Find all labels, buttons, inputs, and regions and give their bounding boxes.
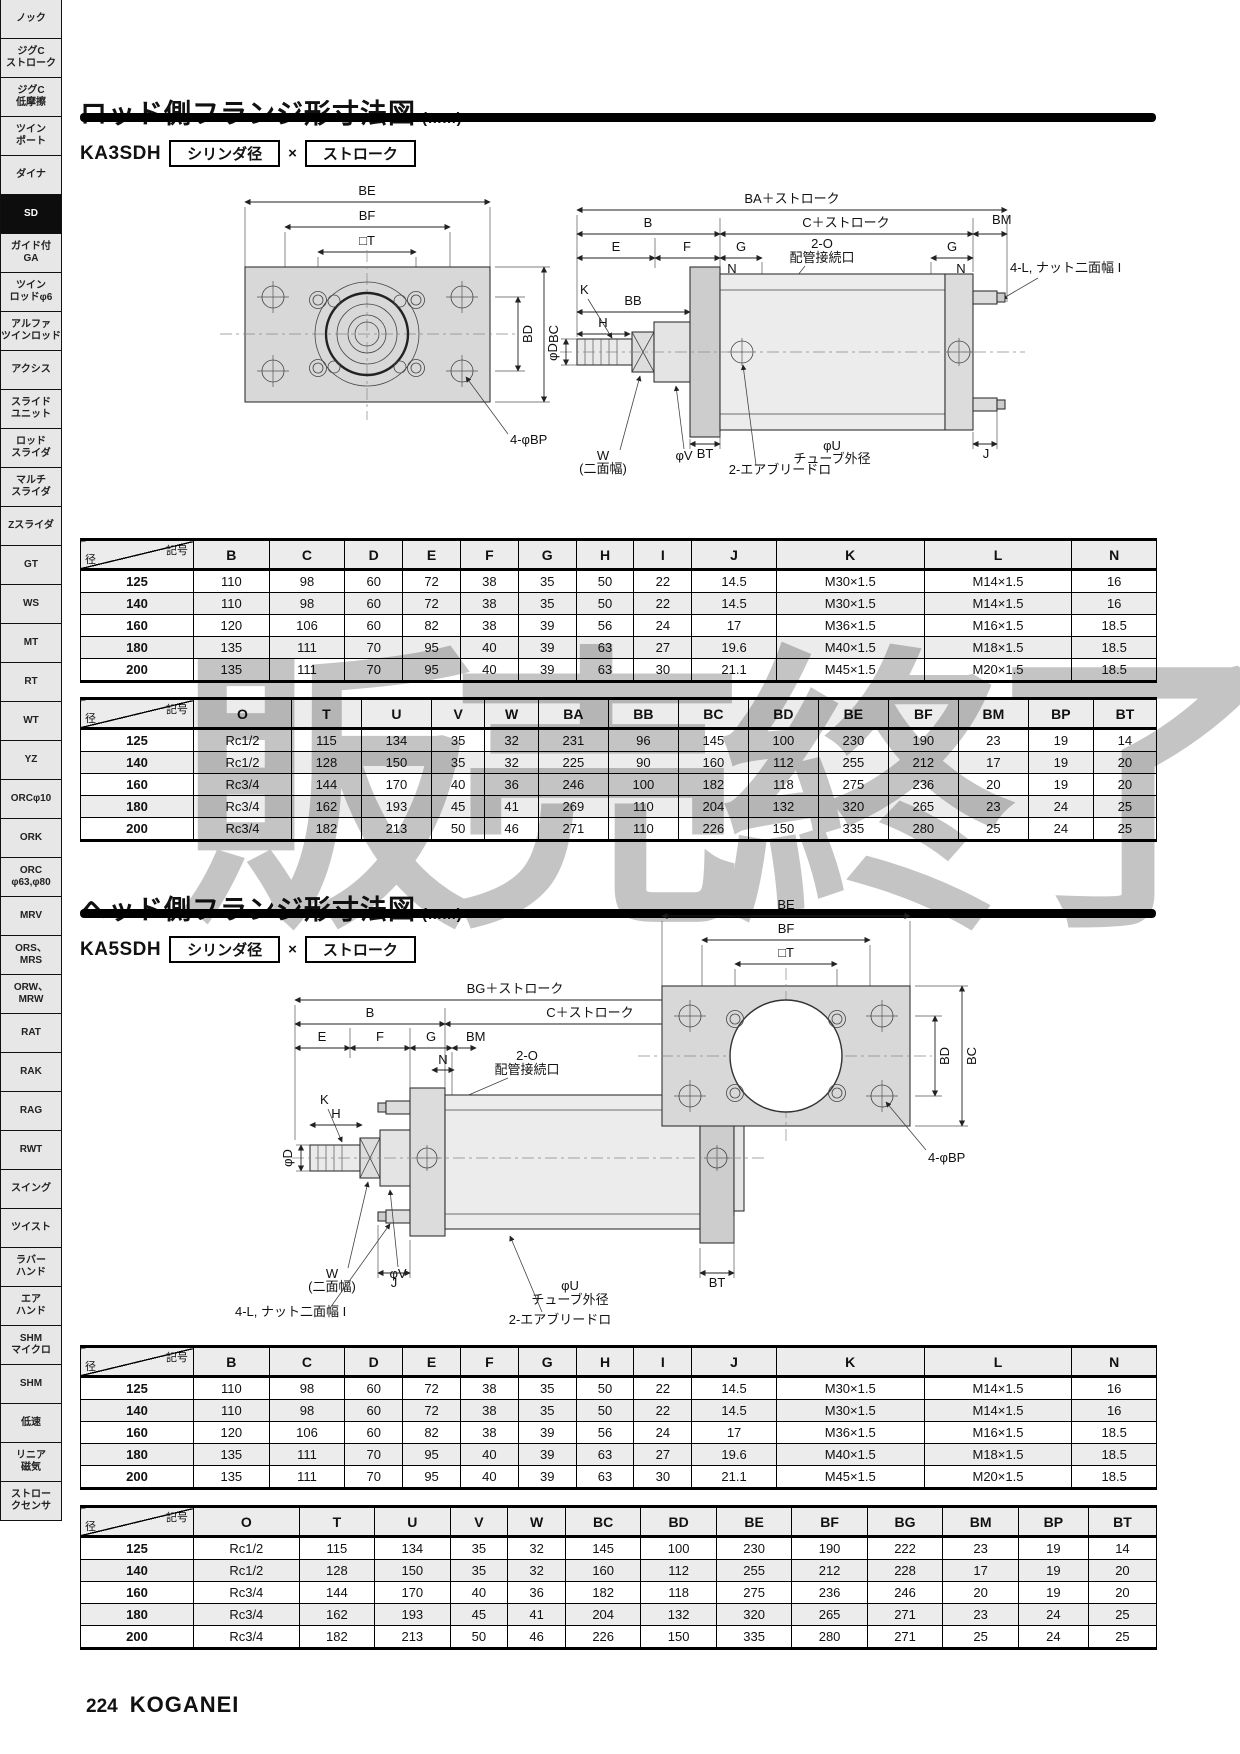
dimension-cell: 150: [748, 818, 818, 841]
column-header: F: [460, 540, 518, 570]
dim-label-ba: BA＋ストローク: [744, 191, 839, 206]
dimension-cell: 39: [518, 1422, 576, 1444]
dim-label-w2: (二面幅): [579, 461, 627, 476]
dimension-cell: 95: [403, 1466, 461, 1489]
dimension-cell: 36: [508, 1582, 566, 1604]
sidebar-item-9[interactable]: アクシス: [0, 350, 62, 390]
bore-size-cell: 160: [81, 615, 194, 637]
dimension-cell: 22: [634, 1400, 692, 1422]
corner-header-cell: 記号径: [81, 540, 194, 570]
rod-cover-2: [410, 1088, 445, 1236]
sidebar-item-23[interactable]: MRV: [0, 896, 62, 936]
dimension-cell: 35: [431, 752, 485, 774]
dimension-cell: 25: [958, 818, 1028, 841]
dimension-cell: 18.5: [1072, 637, 1157, 659]
dimension-cell: Rc1/2: [194, 1560, 300, 1582]
sidebar-item-34[interactable]: SHM マイクロ: [0, 1325, 62, 1365]
sidebar-item-36[interactable]: 低速: [0, 1403, 62, 1443]
dimension-cell: 160: [565, 1560, 640, 1582]
dimension-cell: 14: [1093, 729, 1156, 752]
dimension-cell: M30×1.5: [776, 1377, 924, 1400]
bore-size-cell: 140: [81, 1400, 194, 1422]
dimension-cell: M14×1.5: [924, 593, 1072, 615]
dimension-cell: 46: [485, 818, 539, 841]
sidebar-item-8[interactable]: アルファ ツインロッド: [0, 311, 62, 351]
column-header: B: [194, 1347, 270, 1377]
dimension-cell: 17: [943, 1560, 1019, 1582]
column-header: L: [924, 540, 1072, 570]
dim-label-u2: φU: [561, 1278, 579, 1293]
dimension-cell: 40: [460, 659, 518, 682]
dimension-cell: 23: [943, 1604, 1019, 1626]
dimension-cell: 170: [361, 774, 431, 796]
dimension-cell: 40: [431, 774, 485, 796]
dimension-cell: 70: [345, 659, 403, 682]
sidebar-item-25[interactable]: ORW、 MRW: [0, 974, 62, 1014]
column-header: W: [508, 1507, 566, 1537]
dimension-cell: 335: [716, 1626, 791, 1649]
dimension-cell: 14: [1088, 1537, 1156, 1560]
dim-label-e2: E: [318, 1029, 327, 1044]
dimension-cell: 19: [1018, 1560, 1088, 1582]
bore-size-cell: 160: [81, 1582, 194, 1604]
ka3sdh-mounting-table: 記号径OTUVWBABBBCBDBEBFBMBPBT125Rc1/2115134…: [80, 697, 1157, 842]
dimension-cell: 22: [634, 1377, 692, 1400]
dim-label-bm: BM: [992, 212, 1012, 227]
dimension-cell: 231: [538, 729, 608, 752]
dim-label-j2: J: [391, 1275, 398, 1290]
dimension-cell: 45: [431, 796, 485, 818]
column-header: BD: [641, 1507, 716, 1537]
dimension-cell: 38: [460, 570, 518, 593]
dimension-cell: 265: [792, 1604, 867, 1626]
table-row: 180Rc3/41621934541204132320265271232425: [81, 1604, 1157, 1626]
dimension-cell: Rc1/2: [194, 729, 292, 752]
dimension-cell: 275: [716, 1582, 791, 1604]
sidebar-item-37[interactable]: リニア 磁気: [0, 1442, 62, 1482]
dim-label-bb: BB: [624, 293, 641, 308]
sidebar-item-20[interactable]: ORCφ10: [0, 779, 62, 819]
dimension-cell: 38: [460, 1422, 518, 1444]
column-header: B: [194, 540, 270, 570]
ka3sdh-dimension-table: 記号径BCDEFGHIJKLN1251109860723835502214.5M…: [80, 538, 1157, 683]
dimension-cell: 25: [943, 1626, 1019, 1649]
dim-label-g2: G: [947, 239, 957, 254]
sidebar-item-21[interactable]: ORK: [0, 818, 62, 858]
dim-label-f2: F: [376, 1029, 384, 1044]
dim-label-f: F: [683, 239, 691, 254]
column-header: BP: [1028, 699, 1093, 729]
dimension-cell: 24: [634, 615, 692, 637]
times-sign: ×: [288, 145, 297, 162]
column-header: T: [299, 1507, 374, 1537]
sidebar-item-22[interactable]: ORC φ63,φ80: [0, 857, 62, 897]
dimension-cell: 46: [508, 1626, 566, 1649]
dimension-cell: Rc3/4: [194, 796, 292, 818]
sidebar-item-32[interactable]: ラバー ハンド: [0, 1247, 62, 1287]
table-row: 160Rc3/41441704036182118275236246201920: [81, 1582, 1157, 1604]
corner-header-cell: 記号径: [81, 1347, 194, 1377]
dim-label-d2: φD: [280, 1149, 295, 1167]
nut-width-label-2: 4-L, ナット二面幅 I: [235, 1304, 346, 1319]
dim-label-n1-2: N: [438, 1052, 447, 1067]
dimension-cell: 35: [518, 1400, 576, 1422]
sidebar-item-33[interactable]: エア ハンド: [0, 1286, 62, 1326]
dim-label-e: E: [612, 239, 621, 254]
dimension-cell: 135: [194, 659, 270, 682]
dimension-cell: 255: [818, 752, 888, 774]
sidebar-item-4[interactable]: ダイナ: [0, 155, 62, 195]
dimension-cell: M30×1.5: [776, 593, 924, 615]
dimension-cell: 100: [641, 1537, 716, 1560]
sidebar-item-27[interactable]: RAK: [0, 1052, 62, 1092]
dimension-cell: 27: [634, 1444, 692, 1466]
dim-label-bg: BG＋ストローク: [467, 981, 564, 996]
koganei-logo: KOGANEI: [130, 1692, 240, 1718]
dimension-cell: 35: [518, 1377, 576, 1400]
dim-label-k2: K: [320, 1092, 329, 1107]
bore-size-cell: 125: [81, 729, 194, 752]
bore-size-cell: 125: [81, 570, 194, 593]
dimension-cell: 21.1: [692, 659, 777, 682]
column-header: G: [518, 540, 576, 570]
dimension-cell: 38: [460, 1377, 518, 1400]
dimension-cell: 111: [269, 637, 345, 659]
air-bleed-label-2: 2-エアブリードロ: [509, 1312, 612, 1327]
section1-title: ロッド側フランジ形寸法図(mm): [80, 92, 463, 131]
sidebar-item-5[interactable]: SD: [0, 194, 62, 234]
nut-width-label: 4-L, ナット二面幅 I: [1010, 260, 1121, 275]
technical-drawing-ka3sdh: BE BF □T BD BC 4-φBP: [80, 172, 1160, 477]
corner-header-cell: 記号径: [81, 699, 194, 729]
dimension-cell: M45×1.5: [776, 659, 924, 682]
bore-size-cell: 125: [81, 1537, 194, 1560]
dimension-cell: 190: [792, 1537, 867, 1560]
sidebar-item-16[interactable]: MT: [0, 623, 62, 663]
dimension-cell: 38: [460, 1400, 518, 1422]
dimension-cell: 22: [634, 593, 692, 615]
flange-plate-front: [245, 267, 490, 402]
dimension-cell: Rc3/4: [194, 774, 292, 796]
bore-size-box: シリンダ径: [169, 140, 280, 167]
table-row: 20013511170954039633021.1M45×1.5M20×1.51…: [81, 1466, 1157, 1489]
dimension-cell: 230: [818, 729, 888, 752]
dimension-cell: 18.5: [1072, 659, 1157, 682]
dimension-cell: M36×1.5: [776, 1422, 924, 1444]
dim-label-be2: BE: [777, 897, 795, 912]
sidebar-item-2[interactable]: ジグC 低摩擦: [0, 77, 62, 117]
dimension-cell: Rc3/4: [194, 1626, 300, 1649]
column-header: N: [1072, 540, 1157, 570]
dimension-cell: 56: [576, 615, 634, 637]
table-row: 1251109860723835502214.5M30×1.5M14×1.516: [81, 570, 1157, 593]
dimension-cell: 150: [641, 1626, 716, 1649]
column-header: K: [776, 540, 924, 570]
dim-label-d: φD: [545, 343, 560, 361]
column-header: BM: [943, 1507, 1019, 1537]
dimension-cell: M14×1.5: [924, 1377, 1072, 1400]
column-header: I: [634, 1347, 692, 1377]
dim-label-b2: B: [366, 1005, 375, 1020]
dimension-cell: 24: [1018, 1626, 1088, 1649]
column-header: C: [269, 540, 345, 570]
sidebar-item-26[interactable]: RAT: [0, 1013, 62, 1053]
dimension-cell: 70: [345, 1444, 403, 1466]
sidebar-item-30[interactable]: スイング: [0, 1169, 62, 1209]
dim-label-bc: BC: [546, 325, 561, 343]
sidebar-item-31[interactable]: ツイスト: [0, 1208, 62, 1248]
column-header: BP: [1018, 1507, 1088, 1537]
dimension-cell: 132: [748, 796, 818, 818]
dim-label-t: □T: [359, 233, 375, 248]
air-bleed-label: 2-エアブリードロ: [729, 462, 832, 477]
dim-label-j: J: [983, 446, 990, 461]
column-header: BG: [867, 1507, 942, 1537]
dimension-cell: 225: [538, 752, 608, 774]
stroke-box: ストローク: [305, 140, 416, 167]
dimension-cell: 128: [299, 1560, 374, 1582]
dimension-table: 記号径BCDEFGHIJKLN1251109860723835502214.5M…: [80, 1345, 1157, 1490]
dim-label-k: K: [580, 282, 589, 297]
dimension-cell: 14.5: [692, 1377, 777, 1400]
column-header: BF: [888, 699, 958, 729]
dimension-cell: 190: [888, 729, 958, 752]
bore-size-cell: 200: [81, 659, 194, 682]
dimension-cell: 22: [634, 570, 692, 593]
dimension-cell: 18.5: [1072, 1444, 1157, 1466]
sidebar-item-3[interactable]: ツイン ポート: [0, 116, 62, 156]
column-header: BE: [818, 699, 888, 729]
dimension-cell: 204: [565, 1604, 640, 1626]
sidebar-item-13[interactable]: Zスライダ: [0, 506, 62, 546]
dimension-cell: 82: [403, 1422, 461, 1444]
ka5sdh-mounting-table: 記号径OTUVWBCBDBEBFBGBMBPBT125Rc1/211513435…: [80, 1505, 1157, 1650]
dimension-cell: 36: [485, 774, 539, 796]
dimension-cell: 40: [450, 1582, 508, 1604]
dimension-cell: 246: [867, 1582, 942, 1604]
dimension-cell: 255: [716, 1560, 791, 1582]
sidebar-item-29[interactable]: RWT: [0, 1130, 62, 1170]
dimension-cell: 118: [641, 1582, 716, 1604]
dimension-cell: 120: [194, 615, 270, 637]
dimension-cell: 18.5: [1072, 1422, 1157, 1444]
sidebar-item-6[interactable]: ガイド付 GA: [0, 233, 62, 273]
dimension-cell: 269: [538, 796, 608, 818]
bore-size-cell: 200: [81, 1626, 194, 1649]
dimension-cell: M18×1.5: [924, 637, 1072, 659]
dimension-cell: Rc1/2: [194, 1537, 300, 1560]
dim-label-g1-2: G: [426, 1029, 436, 1044]
column-header: V: [450, 1507, 508, 1537]
dimension-cell: M16×1.5: [924, 615, 1072, 637]
dimension-cell: 204: [678, 796, 748, 818]
dimension-cell: 20: [1088, 1582, 1156, 1604]
dimension-cell: 236: [888, 774, 958, 796]
dimension-cell: 182: [678, 774, 748, 796]
column-header: F: [460, 1347, 518, 1377]
column-header: H: [576, 540, 634, 570]
dimension-cell: 25: [1088, 1626, 1156, 1649]
dimension-cell: 50: [576, 1377, 634, 1400]
sidebar-item-12[interactable]: マルチ スライダ: [0, 467, 62, 507]
tie-rod-nut-top-2: [386, 1101, 410, 1114]
dimension-cell: 41: [508, 1604, 566, 1626]
section1-model-line: KA3SDH シリンダ径 × ストローク: [80, 140, 416, 167]
dimension-cell: M36×1.5: [776, 615, 924, 637]
dimension-cell: 30: [634, 659, 692, 682]
sidebar-item-24[interactable]: ORS、 MRS: [0, 935, 62, 975]
dimension-cell: 72: [403, 1377, 461, 1400]
dimension-cell: Rc1/2: [194, 752, 292, 774]
table-row: 20013511170954039633021.1M45×1.5M20×1.51…: [81, 659, 1157, 682]
dimension-cell: 56: [576, 1422, 634, 1444]
dimension-cell: M20×1.5: [924, 659, 1072, 682]
dimension-cell: 39: [518, 615, 576, 637]
bore-size-cell: 140: [81, 593, 194, 615]
dimension-cell: 19: [1018, 1582, 1088, 1604]
model-code-ka3sdh: KA3SDH: [80, 143, 161, 165]
dimension-cell: 135: [194, 637, 270, 659]
dimension-cell: 213: [375, 1626, 450, 1649]
dim-label-v: φV: [675, 448, 692, 463]
sidebar-item-17[interactable]: RT: [0, 662, 62, 702]
column-header: D: [345, 540, 403, 570]
dimension-cell: 18.5: [1072, 1466, 1157, 1489]
page-footer: 224 KOGANEI: [86, 1692, 239, 1718]
dimension-cell: 335: [818, 818, 888, 841]
column-header: E: [403, 540, 461, 570]
dimension-cell: 60: [345, 1400, 403, 1422]
dimension-cell: 40: [460, 637, 518, 659]
dimension-cell: 110: [608, 818, 678, 841]
dimension-cell: 150: [375, 1560, 450, 1582]
sidebar-item-0[interactable]: ノック: [0, 0, 62, 39]
product-category-sidebar: ノックジグC ストロークジグC 低摩擦ツイン ポートダイナSDガイド付 GAツイ…: [0, 0, 62, 1521]
table-row: 1251109860723835502214.5M30×1.5M14×1.516: [81, 1377, 1157, 1400]
column-header: V: [431, 699, 485, 729]
dimension-cell: 19: [1028, 729, 1093, 752]
sidebar-item-10[interactable]: スライド ユニット: [0, 389, 62, 429]
dim-label-be: BE: [358, 183, 376, 198]
sidebar-item-35[interactable]: SHM: [0, 1364, 62, 1404]
dimension-cell: 39: [518, 659, 576, 682]
dimension-cell: 111: [269, 1444, 345, 1466]
sidebar-item-14[interactable]: GT: [0, 545, 62, 585]
dimension-cell: 275: [818, 774, 888, 796]
dimension-cell: 106: [269, 1422, 345, 1444]
dimension-cell: 111: [269, 1466, 345, 1489]
dimension-cell: 170: [375, 1582, 450, 1604]
table-row: 200Rc3/418221350462711102261503352802524…: [81, 818, 1157, 841]
bore-size-cell: 125: [81, 1377, 194, 1400]
port-label-2: 配管接続口: [494, 1062, 559, 1077]
section1-divider-bar: [80, 113, 1156, 122]
dimension-cell: 32: [485, 729, 539, 752]
dim-label-bf: BF: [359, 208, 376, 223]
front-view-rod-flange: BE BF □T BD BC 4-φBP: [220, 183, 561, 447]
dimension-cell: 19: [1018, 1537, 1088, 1560]
sidebar-item-28[interactable]: RAG: [0, 1091, 62, 1131]
dimension-cell: 134: [361, 729, 431, 752]
dimension-cell: 320: [716, 1604, 791, 1626]
dim-label-bd2: BD: [937, 1047, 952, 1065]
dimension-cell: 228: [867, 1560, 942, 1582]
table-row: 125Rc1/21151343532145100230190222231914: [81, 1537, 1157, 1560]
sidebar-item-15[interactable]: WS: [0, 584, 62, 624]
dimension-cell: 193: [375, 1604, 450, 1626]
dimension-cell: 236: [792, 1582, 867, 1604]
dimension-cell: 19: [1028, 752, 1093, 774]
column-header: BT: [1088, 1507, 1156, 1537]
dimension-cell: 110: [194, 593, 270, 615]
sidebar-item-11[interactable]: ロッド スライダ: [0, 428, 62, 468]
bore-size-cell: 200: [81, 1466, 194, 1489]
bore-size-cell: 160: [81, 1422, 194, 1444]
dim-label-bf2: BF: [778, 921, 795, 936]
dim-label-bt2: BT: [709, 1275, 726, 1290]
dim-label-4bp2: 4-φBP: [928, 1150, 965, 1165]
dimension-cell: 115: [291, 729, 361, 752]
dimension-cell: 70: [345, 1466, 403, 1489]
dimension-cell: 96: [608, 729, 678, 752]
dimension-cell: 50: [576, 1400, 634, 1422]
dimension-cell: 18.5: [1072, 615, 1157, 637]
dimension-cell: M40×1.5: [776, 637, 924, 659]
bore-size-cell: 200: [81, 818, 194, 841]
dimension-cell: 110: [194, 1400, 270, 1422]
dimension-cell: 63: [576, 1466, 634, 1489]
sidebar-item-1[interactable]: ジグC ストローク: [0, 38, 62, 78]
dimension-cell: 35: [450, 1537, 508, 1560]
column-header: U: [375, 1507, 450, 1537]
dimension-cell: 45: [450, 1604, 508, 1626]
dimension-cell: 60: [345, 615, 403, 637]
dimension-cell: M14×1.5: [924, 1400, 1072, 1422]
dimension-cell: 40: [460, 1444, 518, 1466]
dim-label-bd: BD: [520, 325, 535, 343]
dimension-cell: 30: [634, 1466, 692, 1489]
dimension-cell: 182: [291, 818, 361, 841]
sidebar-item-38[interactable]: ストロー クセンサ: [0, 1481, 62, 1521]
dimension-cell: 95: [403, 1444, 461, 1466]
dimension-cell: 72: [403, 1400, 461, 1422]
dimension-cell: M40×1.5: [776, 1444, 924, 1466]
sidebar-item-19[interactable]: YZ: [0, 740, 62, 780]
dimension-cell: M30×1.5: [776, 570, 924, 593]
column-header: H: [576, 1347, 634, 1377]
dimension-cell: 226: [678, 818, 748, 841]
dimension-cell: 24: [1028, 796, 1093, 818]
table-row: 180Rc3/416219345412691102041323202652324…: [81, 796, 1157, 818]
dimension-cell: 230: [716, 1537, 791, 1560]
dimension-cell: 112: [641, 1560, 716, 1582]
dimension-table: 記号径OTUVWBABBBCBDBEBFBMBPBT125Rc1/2115134…: [80, 697, 1157, 842]
dimension-cell: 82: [403, 615, 461, 637]
dimension-cell: 111: [269, 659, 345, 682]
dim-label-bm2: BM: [466, 1029, 486, 1044]
column-header: L: [924, 1347, 1072, 1377]
dimension-cell: 60: [345, 1377, 403, 1400]
tie-rod-nut-bottom-2: [386, 1210, 410, 1223]
table-row: 1401109860723835502214.5M30×1.5M14×1.516: [81, 593, 1157, 615]
dimension-cell: 100: [748, 729, 818, 752]
sidebar-item-7[interactable]: ツイン ロッドφ6: [0, 272, 62, 312]
dimension-cell: 32: [508, 1537, 566, 1560]
dimension-cell: 162: [291, 796, 361, 818]
dimension-cell: 14.5: [692, 593, 777, 615]
dimension-cell: 20: [1093, 752, 1156, 774]
sidebar-item-18[interactable]: WT: [0, 701, 62, 741]
